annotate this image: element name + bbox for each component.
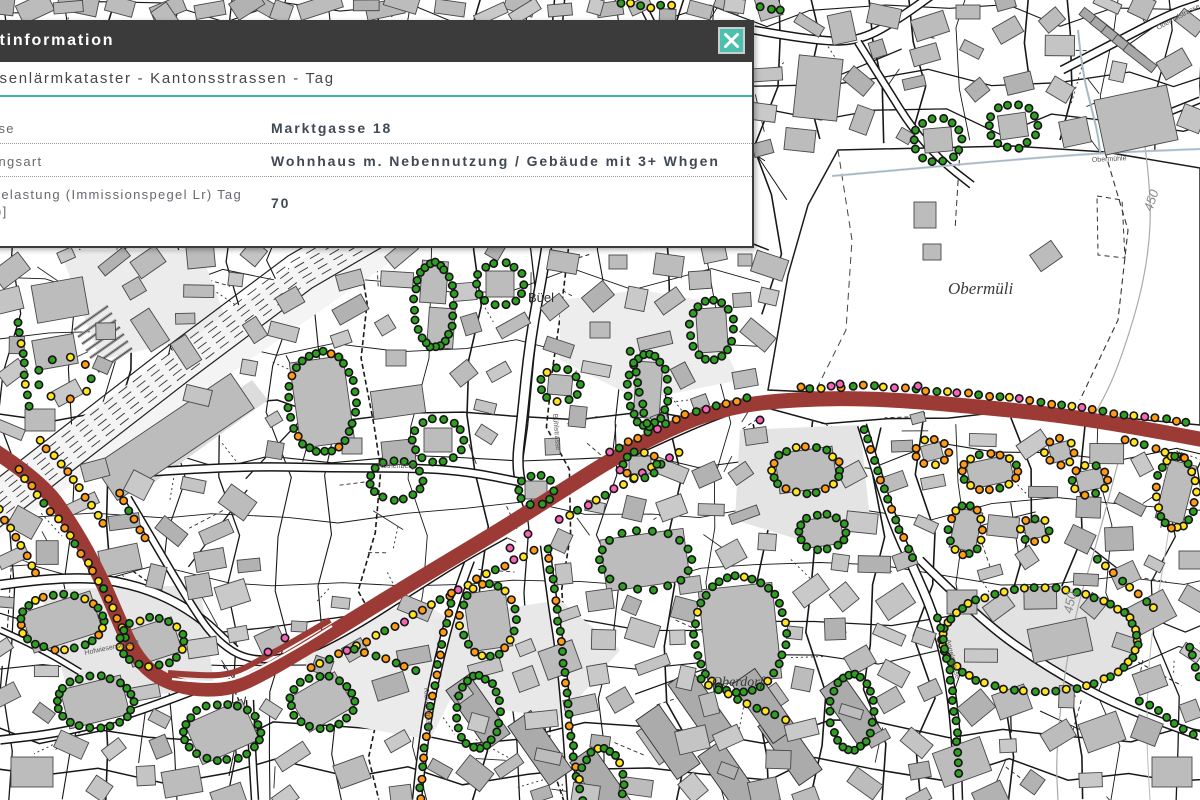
svg-text:Oberdorf: Oberdorf [712,675,766,690]
svg-text:Obermüli: Obermüli [948,279,1013,298]
svg-text:Büel: Büel [528,290,554,305]
svg-text:Rothenberg: Rothenberg [378,463,415,470]
